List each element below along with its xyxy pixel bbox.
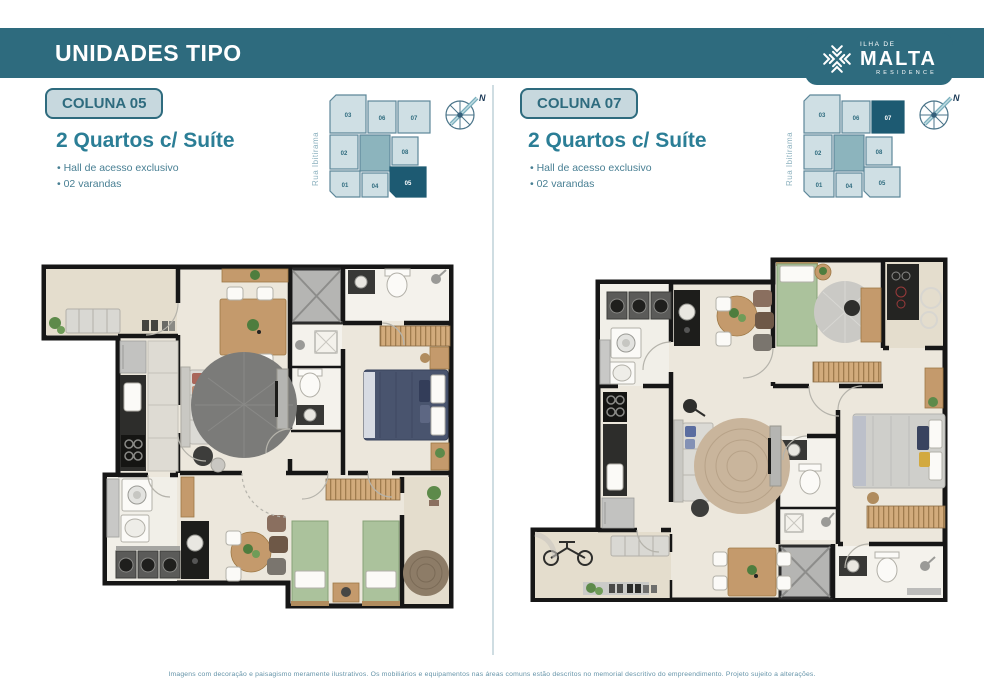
keyplan-building: 03 06 07 02 08 01 04 05	[330, 95, 430, 197]
sink	[124, 383, 141, 411]
toilet	[800, 470, 820, 494]
plant	[427, 486, 441, 500]
svg-text:08: 08	[876, 150, 883, 156]
toilet	[877, 558, 897, 582]
side-table	[691, 499, 709, 517]
plant	[586, 583, 596, 593]
shoes	[609, 584, 615, 593]
svg-text:07: 07	[885, 116, 892, 122]
keyplan-building: 03 06 07 02 08 01 04 05	[804, 95, 904, 197]
feature-item: 02 varandas	[57, 176, 179, 192]
laundry-machines	[116, 551, 180, 578]
keyplan-coluna-05: Rua Ibitirama 03 06 07 02 08 01 04 05	[308, 88, 488, 202]
tv	[768, 438, 771, 474]
chair	[226, 531, 241, 545]
plant	[928, 397, 938, 407]
badge-coluna-07: COLUNA 07	[520, 88, 638, 119]
unit-type-title-07: 2 Quartos c/ Suíte	[528, 129, 707, 153]
cabinets	[148, 341, 178, 471]
keyplan-coluna-07: Rua Ibitirama 03 06 07 02 08 01 04 05	[782, 88, 962, 202]
chair	[227, 287, 243, 300]
chair	[713, 552, 727, 566]
tv-console	[770, 426, 781, 486]
cooktop	[121, 435, 145, 467]
features-list-07: Hall de acesso exclusivo 02 varandas	[530, 160, 652, 192]
master-bed	[364, 370, 448, 440]
keyplan-core	[834, 135, 864, 171]
chair	[716, 297, 731, 311]
kitchen	[120, 341, 178, 471]
master-bed	[853, 414, 945, 488]
side-table	[193, 446, 213, 466]
svg-text:04: 04	[846, 184, 853, 190]
logo-name: MALTA	[860, 49, 937, 69]
wardrobe	[813, 362, 881, 382]
bench	[611, 536, 669, 556]
floor-plan-coluna-07	[523, 252, 960, 602]
side-table	[430, 347, 449, 369]
cushion	[685, 426, 696, 437]
svg-text:05: 05	[879, 181, 886, 187]
cabinet	[107, 479, 119, 537]
pouf	[267, 558, 286, 575]
plant	[250, 270, 260, 280]
chair	[777, 576, 791, 590]
plant	[435, 448, 445, 458]
disclaimer-text: Imagens com decoração e paisagismo meram…	[0, 671, 984, 678]
wardrobe	[867, 506, 945, 528]
cabinet	[600, 340, 610, 384]
svg-text:03: 03	[819, 113, 826, 119]
svg-text:04: 04	[372, 184, 379, 190]
shelf	[907, 588, 941, 595]
chair	[844, 300, 860, 316]
pillow	[295, 571, 325, 588]
north-label: N	[479, 93, 486, 103]
chair	[716, 332, 731, 346]
unit-type-title-05: 2 Quartos c/ Suíte	[56, 129, 235, 153]
pouf	[269, 536, 288, 553]
stool	[867, 492, 879, 504]
svg-text:03: 03	[345, 113, 352, 119]
pillow	[431, 407, 445, 435]
wardrobe	[380, 326, 450, 346]
pouf	[753, 334, 772, 351]
malta-cross-icon	[821, 43, 853, 75]
cafe-area	[674, 290, 774, 351]
svg-text:02: 02	[341, 151, 348, 157]
pillow	[780, 266, 814, 282]
grill-counter	[887, 264, 919, 320]
pouf	[753, 290, 772, 307]
compass-rose: N	[446, 93, 486, 129]
tv-console	[277, 369, 288, 429]
desk	[861, 288, 881, 342]
keyplan-core	[360, 135, 390, 171]
fridge	[120, 341, 146, 373]
pouf	[267, 515, 286, 532]
svg-text:06: 06	[853, 116, 860, 122]
pouf	[755, 312, 774, 329]
tv	[275, 381, 278, 417]
pillow	[929, 420, 942, 448]
features-list-05: Hall de acesso exclusivo 02 varandas	[57, 160, 179, 192]
pillow	[431, 375, 445, 403]
cooktop	[603, 392, 627, 422]
single-bed-1	[291, 521, 329, 606]
feature-item: 02 varandas	[530, 176, 652, 192]
fridge	[602, 498, 634, 528]
compass-rose: N	[920, 93, 960, 129]
street-label: Rua Ibitirama	[311, 132, 320, 186]
badge-coluna-05: COLUNA 05	[45, 88, 163, 119]
column-divider	[492, 85, 494, 655]
svg-text:06: 06	[379, 116, 386, 122]
feature-item: Hall de acesso exclusivo	[57, 160, 179, 176]
sink	[607, 464, 623, 490]
svg-text:01: 01	[342, 183, 349, 189]
chair	[226, 567, 241, 581]
chair	[257, 287, 273, 300]
svg-text:01: 01	[816, 183, 823, 189]
floor-plan-coluna-05	[30, 253, 460, 609]
feature-item: Hall de acesso exclusivo	[530, 160, 652, 176]
single-bed-2	[362, 521, 400, 606]
north-label: N	[953, 93, 960, 103]
laundry-machines	[607, 292, 671, 319]
chair	[777, 552, 791, 566]
chair	[713, 576, 727, 590]
pillow	[929, 452, 942, 480]
vase	[341, 587, 351, 597]
page-title: UNIDADES TIPO	[55, 28, 242, 78]
shower-head	[295, 340, 305, 350]
pillow	[366, 571, 396, 588]
street-label: Rua Ibitirama	[785, 132, 794, 186]
shelf	[181, 477, 194, 517]
toilet	[300, 373, 320, 397]
logo-subtitle: RESIDENCE	[860, 71, 937, 77]
svg-text:07: 07	[411, 116, 418, 122]
brand-logo: ILHA DE MALTA RESIDENCE	[805, 33, 953, 85]
shoes	[142, 320, 149, 331]
svg-text:05: 05	[405, 181, 412, 187]
svg-text:02: 02	[815, 151, 822, 157]
elevator-shaft	[291, 269, 342, 323]
svg-text:08: 08	[402, 150, 409, 156]
toilet	[387, 273, 407, 297]
brochure-page: UNIDADES TIPO ILHA DE MALTA RESIDENCE CO…	[0, 0, 984, 690]
yellow-cushion	[919, 452, 930, 467]
